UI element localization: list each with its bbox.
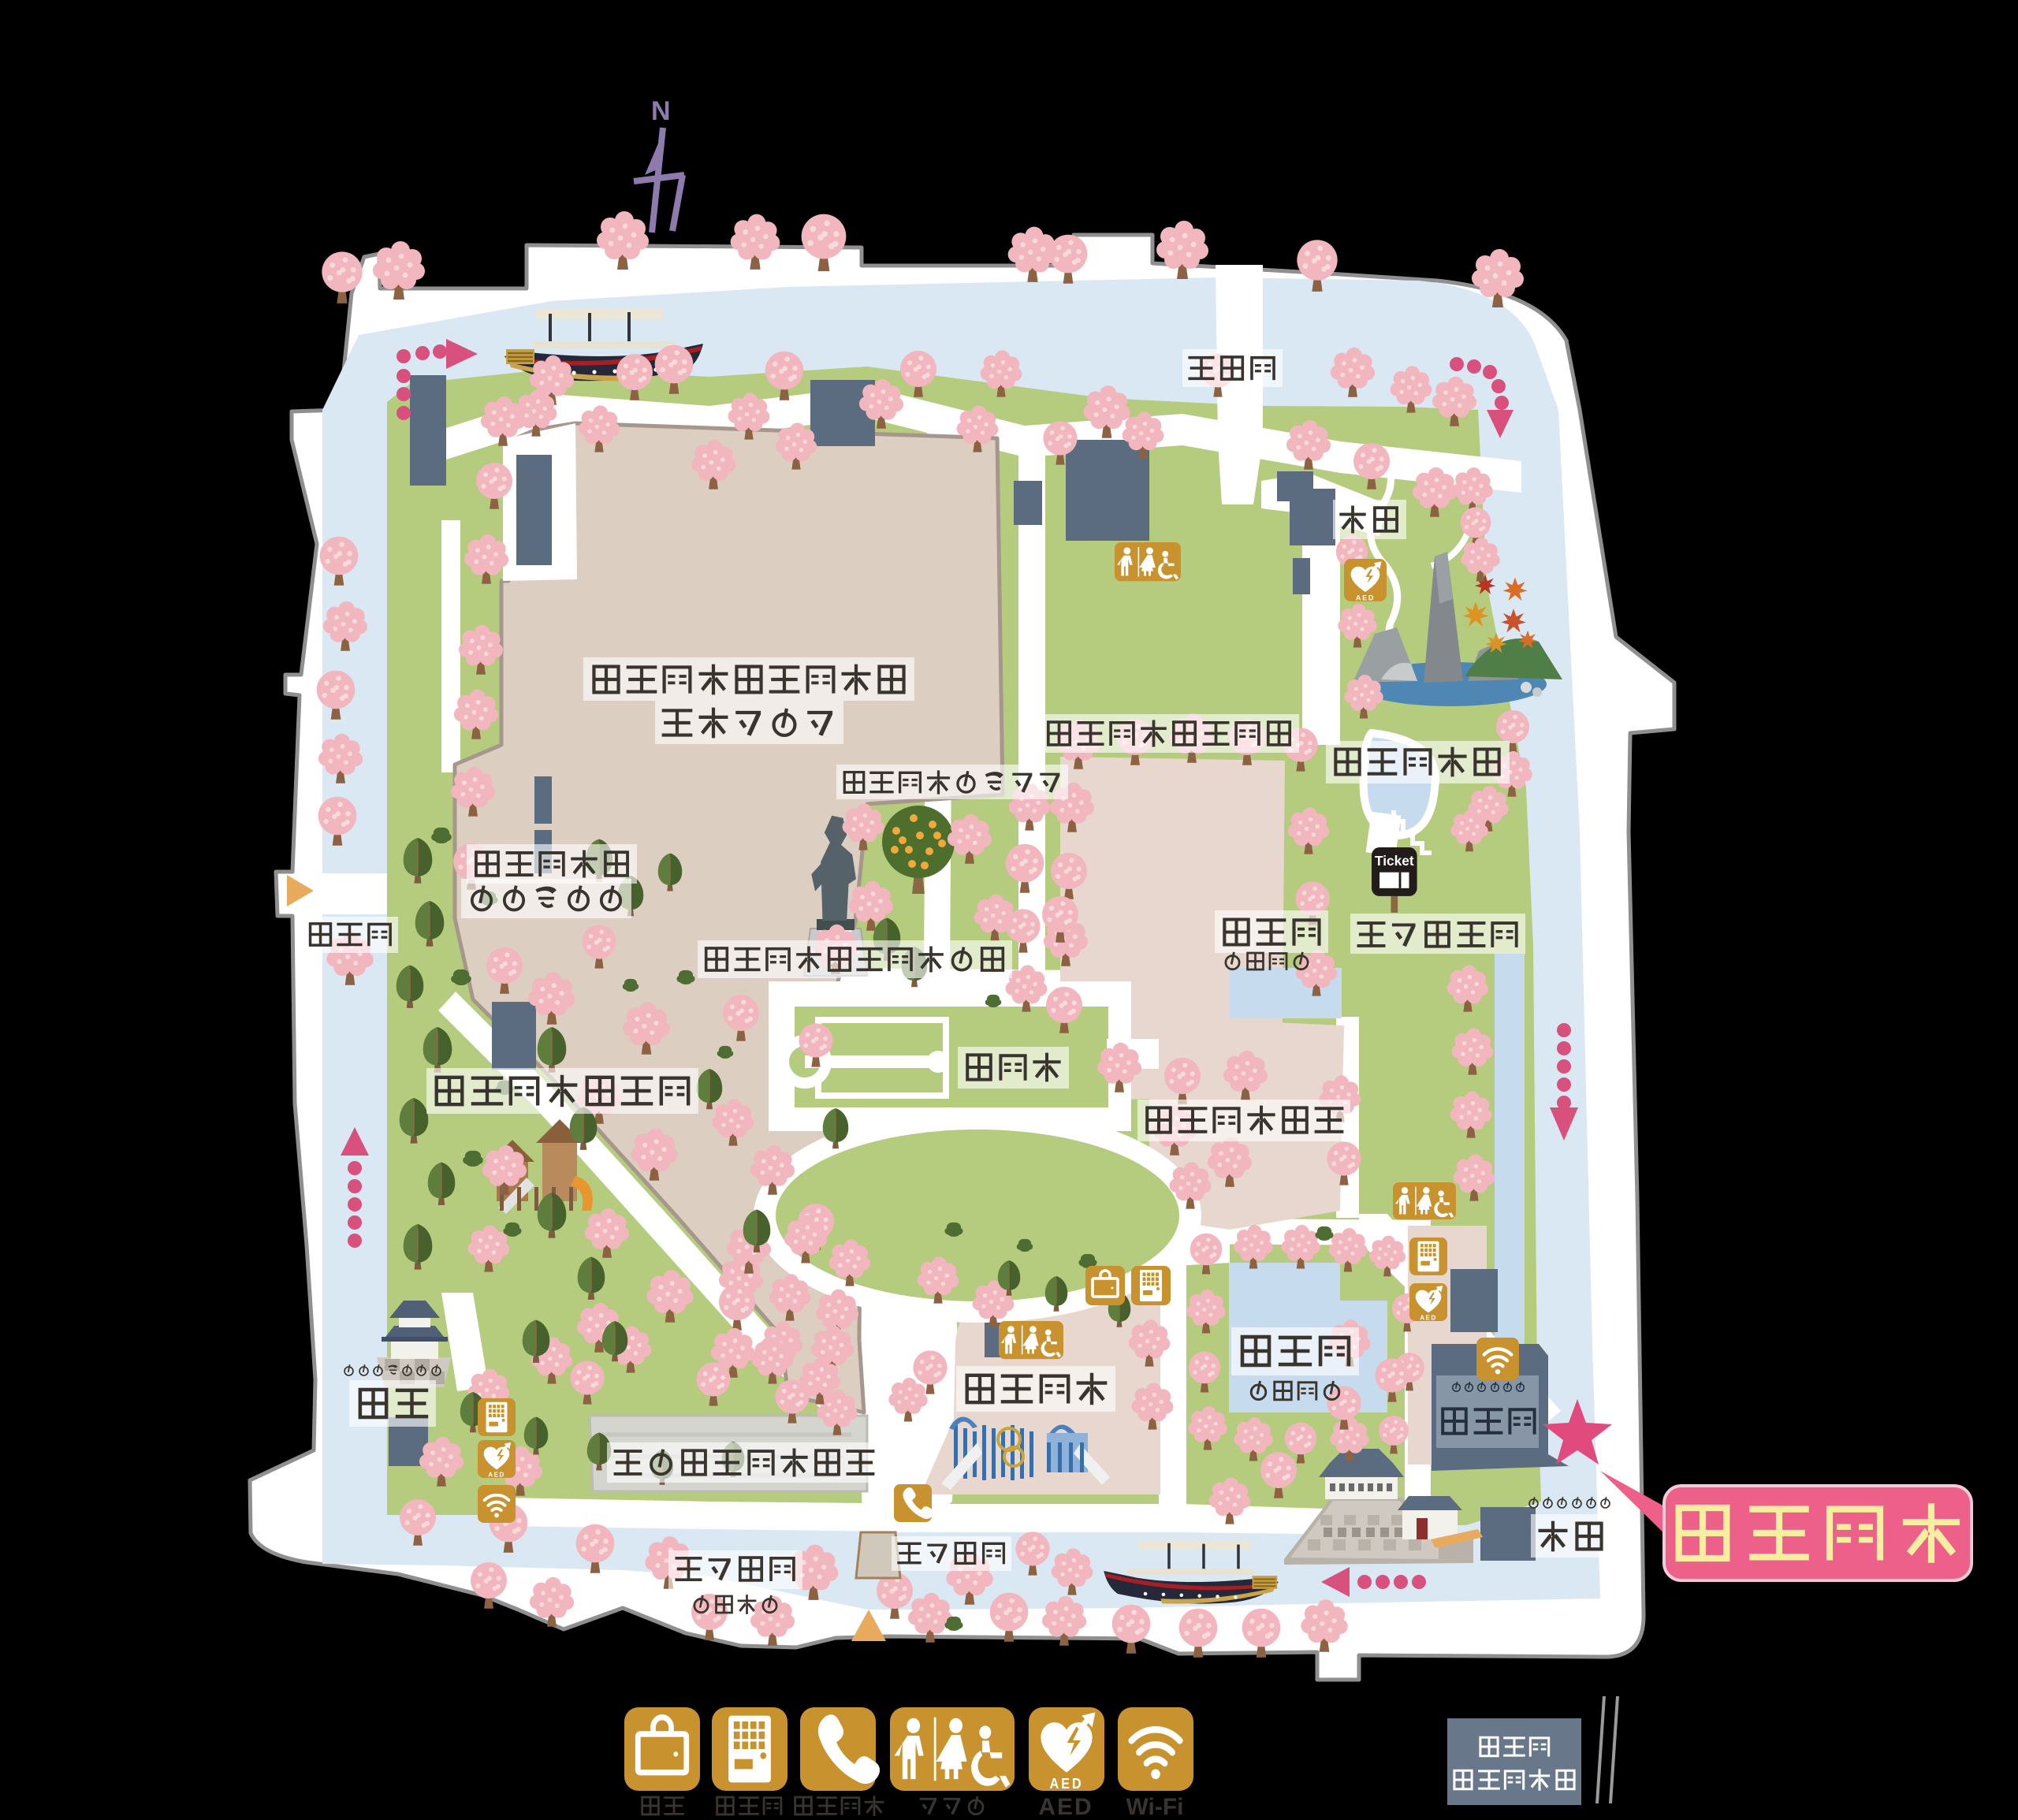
svg-text:Wi-Fi: Wi-Fi bbox=[1126, 1794, 1183, 1820]
svg-text:AED: AED bbox=[1038, 1794, 1093, 1820]
svg-text:N: N bbox=[651, 96, 671, 126]
